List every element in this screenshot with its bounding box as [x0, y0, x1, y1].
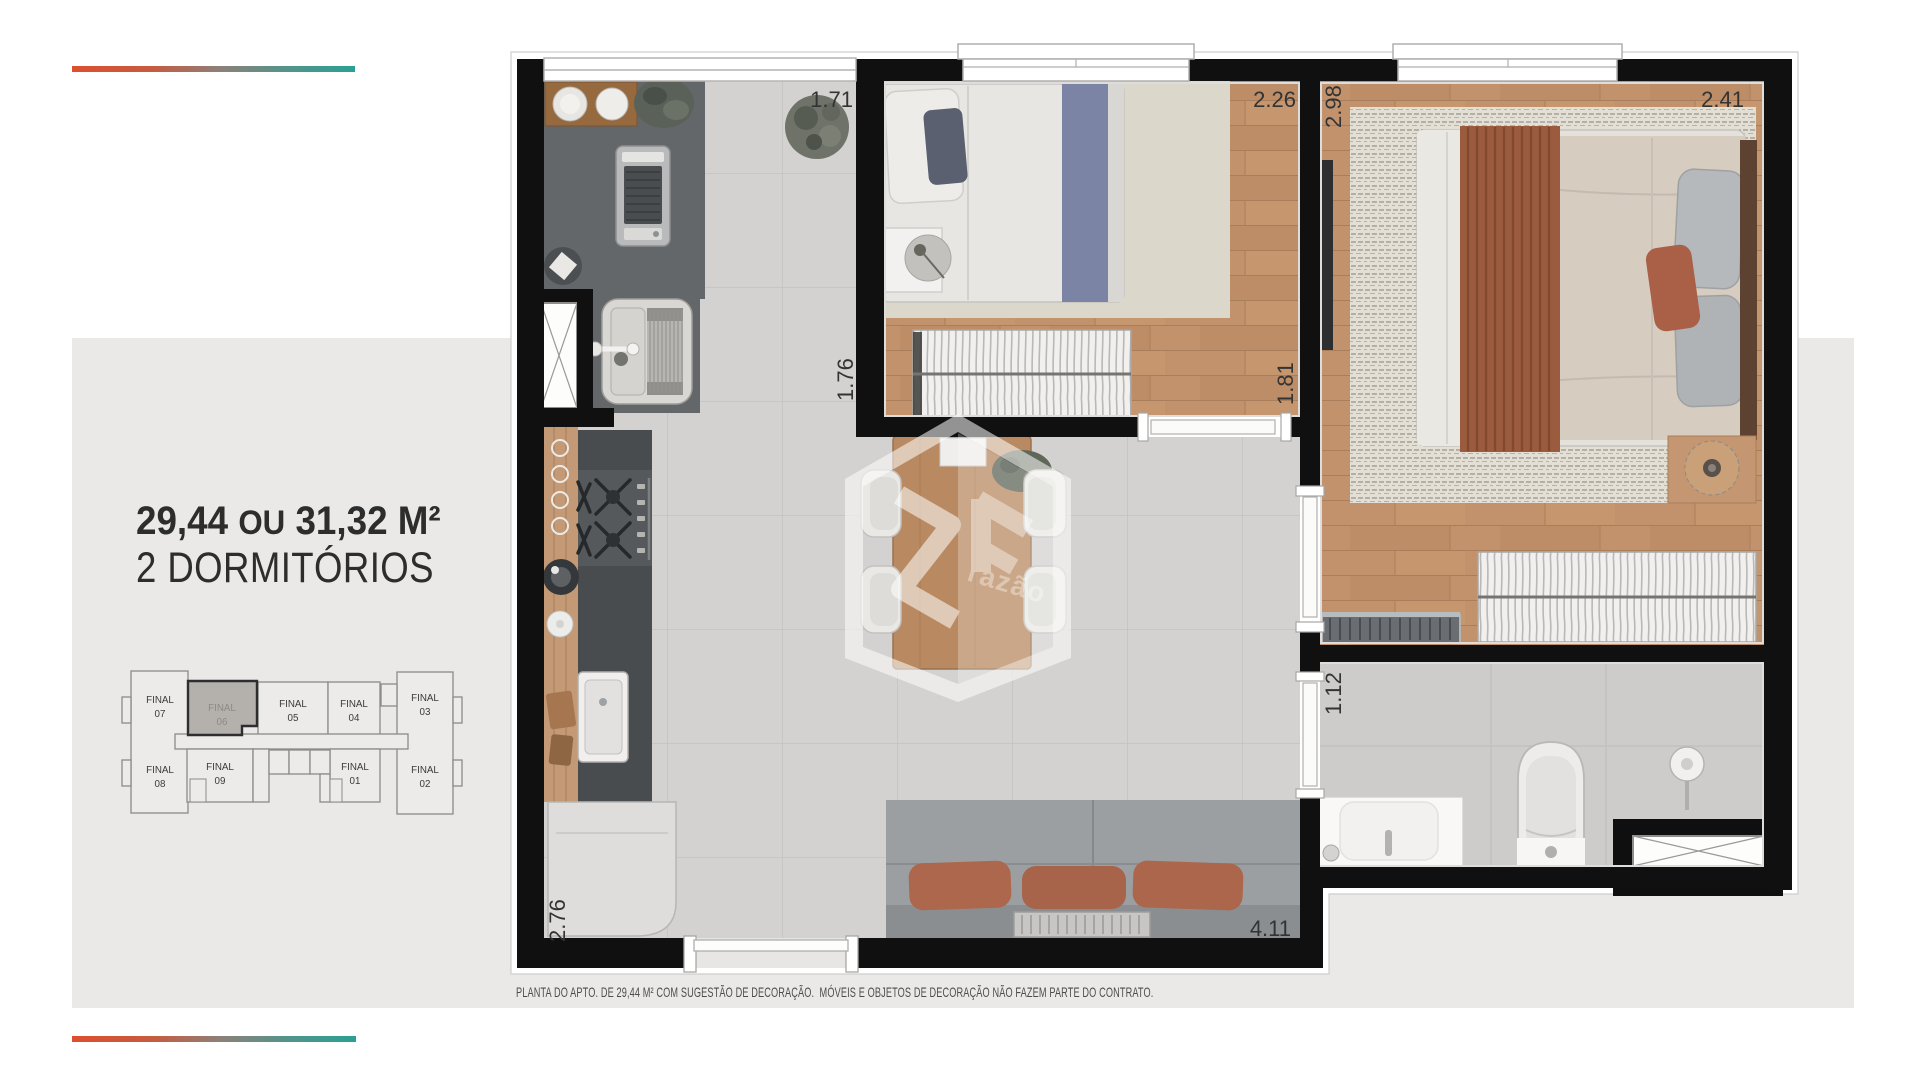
- svg-text:1.12: 1.12: [1321, 672, 1346, 715]
- svg-text:2.98: 2.98: [1321, 85, 1346, 128]
- svg-text:4.11: 4.11: [1250, 916, 1291, 941]
- svg-text:1.71: 1.71: [810, 87, 853, 112]
- svg-text:2.76: 2.76: [545, 899, 570, 942]
- svg-text:1.76: 1.76: [833, 358, 858, 401]
- svg-text:1.81: 1.81: [1273, 362, 1298, 405]
- svg-text:2.26: 2.26: [1253, 87, 1296, 112]
- svg-text:2.41: 2.41: [1701, 87, 1744, 112]
